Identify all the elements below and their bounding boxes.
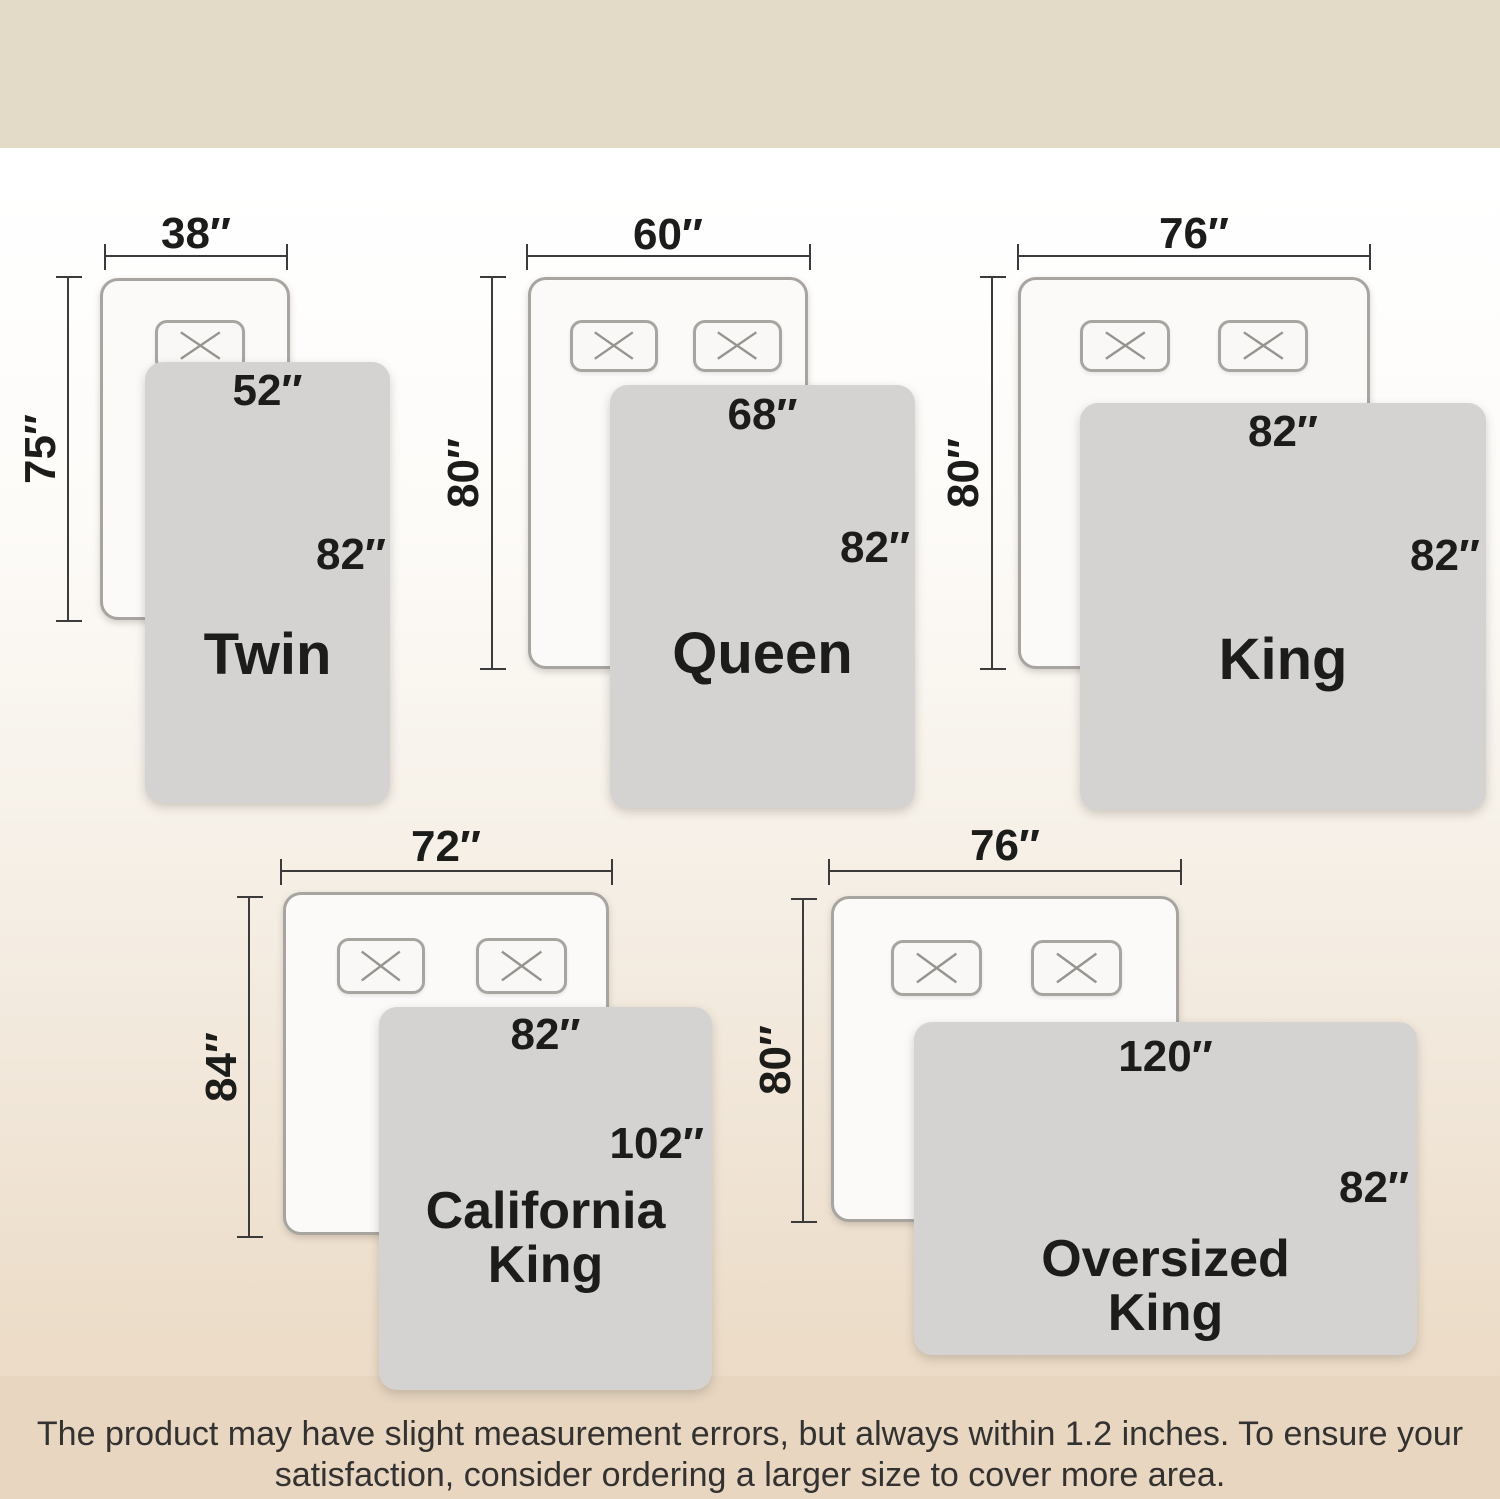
mattress-width-label: 76″ xyxy=(1159,209,1229,259)
blanket-length-label: 82″ xyxy=(316,530,386,580)
blanket-length-label: 82″ xyxy=(840,523,910,573)
pillow-cross-icon xyxy=(1101,329,1150,362)
pillow-cross-icon xyxy=(1052,950,1101,986)
pillow-icon xyxy=(891,940,982,996)
blanket-width-label: 68″ xyxy=(610,390,915,440)
blanket-width-label: 82″ xyxy=(1080,407,1486,457)
disclaimer-line-1: The product may have slight measurement … xyxy=(0,1414,1500,1455)
mattress-length-label: 80″ xyxy=(939,438,989,508)
blanket-width-label: 82″ xyxy=(379,1010,712,1060)
width-measure-line xyxy=(829,870,1181,872)
blanket: 120″ 82″ Oversized King xyxy=(914,1022,1417,1355)
width-measure-line xyxy=(1018,255,1370,257)
pillow-icon xyxy=(1031,940,1122,996)
pillow-cross-icon xyxy=(1239,329,1288,362)
mattress-length-label: 75″ xyxy=(16,414,66,484)
sizing-infographic: SIZING INFO 38″ 75″ 52″ 82″ Twin 60″ 80″ xyxy=(0,0,1500,1499)
mattress-length-label: 80″ xyxy=(439,438,489,508)
pillow-cross-icon xyxy=(713,329,761,362)
blanket-length-label: 102″ xyxy=(610,1119,705,1169)
disclaimer-line-2: satisfaction, consider ordering a larger… xyxy=(0,1455,1500,1496)
blanket-length-label: 82″ xyxy=(1410,531,1480,581)
width-measure-line xyxy=(527,255,810,257)
pillow-cross-icon xyxy=(497,948,546,984)
mattress-width-label: 38″ xyxy=(161,209,231,259)
size-name-label: Twin xyxy=(145,625,390,685)
blanket-width-label: 120″ xyxy=(914,1032,1417,1082)
pillow-icon xyxy=(1218,320,1308,372)
length-measure-line xyxy=(67,277,69,621)
pillow-icon xyxy=(476,938,567,994)
pillow-cross-icon xyxy=(357,948,405,984)
length-measure-line xyxy=(491,277,493,669)
width-measure-line xyxy=(105,255,287,257)
pillow-icon xyxy=(693,320,782,372)
length-measure-line xyxy=(248,897,250,1237)
blanket: 82″ 82″ King xyxy=(1080,403,1486,810)
size-name-label: King xyxy=(1080,630,1486,690)
length-measure-line xyxy=(802,899,804,1222)
disclaimer-text: The product may have slight measurement … xyxy=(0,1414,1500,1496)
blanket: 82″ 102″ California King xyxy=(379,1007,712,1390)
blanket-width-label: 52″ xyxy=(145,366,390,416)
mattress-width-label: 60″ xyxy=(633,210,703,260)
blanket: 52″ 82″ Twin xyxy=(145,362,390,803)
pillow-cross-icon xyxy=(176,329,225,362)
width-measure-line xyxy=(281,870,612,872)
mattress-width-label: 72″ xyxy=(411,822,481,872)
size-name-label: California King xyxy=(379,1184,712,1292)
pillow-cross-icon xyxy=(912,950,961,986)
pillow-cross-icon xyxy=(590,329,638,362)
size-name-label: Oversized King xyxy=(914,1232,1417,1340)
mattress-length-label: 84″ xyxy=(197,1032,247,1102)
mattress-length-label: 80″ xyxy=(751,1025,801,1095)
header-banner xyxy=(0,0,1500,148)
pillow-icon xyxy=(570,320,658,372)
pillow-icon xyxy=(1080,320,1170,372)
blanket: 68″ 82″ Queen xyxy=(610,385,915,808)
blanket-length-label: 82″ xyxy=(1339,1163,1409,1213)
size-name-label: Queen xyxy=(610,624,915,684)
mattress-width-label: 76″ xyxy=(970,821,1040,871)
pillow-icon xyxy=(337,938,425,994)
length-measure-line xyxy=(991,277,993,669)
